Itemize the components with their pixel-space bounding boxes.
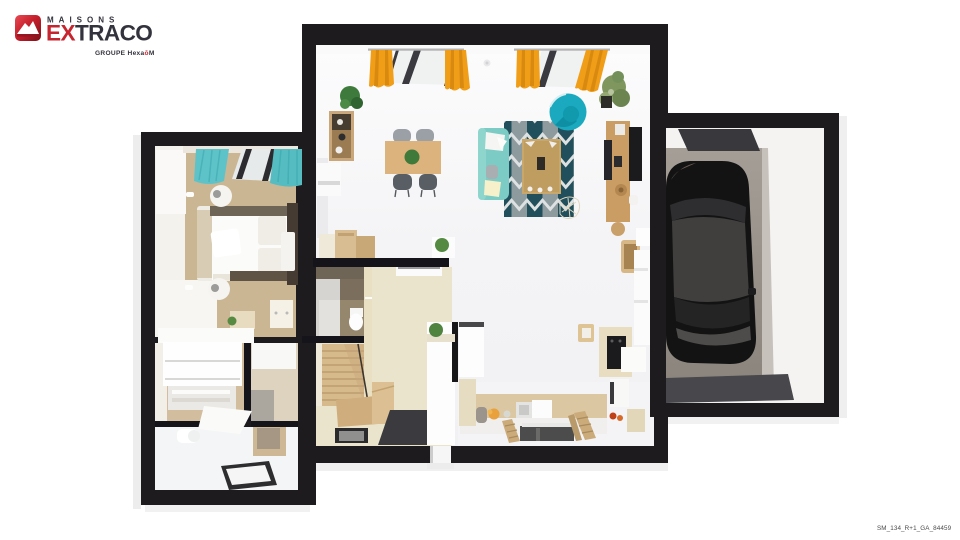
svg-text:EXTRACO: EXTRACO [46,21,152,46]
svg-text:GROUPE HexaōM: GROUPE HexaōM [95,50,155,57]
svg-text:SM_134_R+1_GA_84459: SM_134_R+1_GA_84459 [877,525,952,532]
